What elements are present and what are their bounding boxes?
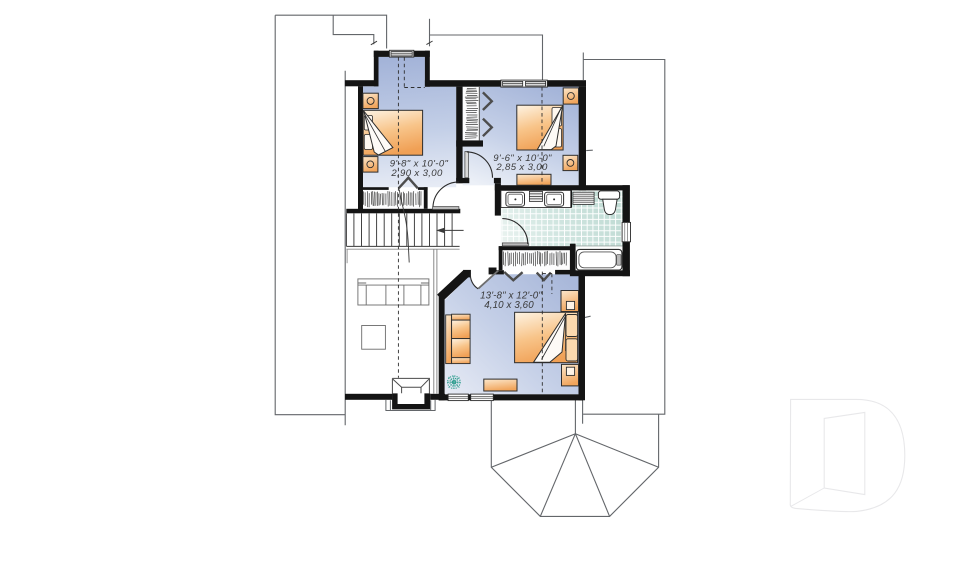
svg-text:2,85 x 3,00: 2,85 x 3,00 — [495, 162, 548, 173]
svg-text:2,90 x 3,00: 2,90 x 3,00 — [390, 168, 443, 179]
svg-text:4,10 x 3,60: 4,10 x 3,60 — [484, 300, 534, 311]
